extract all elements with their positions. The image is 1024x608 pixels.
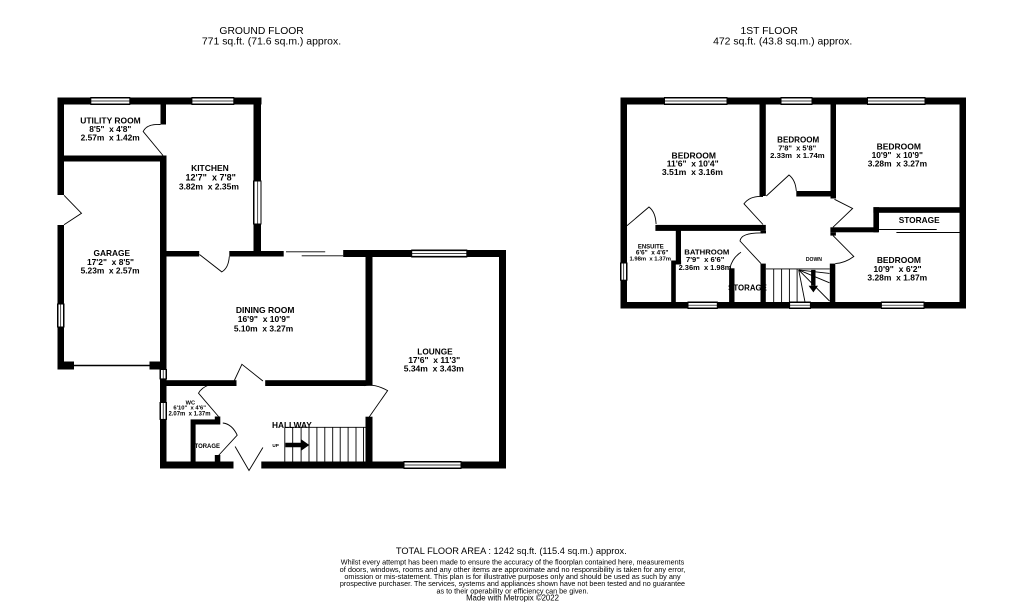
svg-text:2.36m x 1.98m: 2.36m x 1.98m [679, 263, 732, 272]
svg-text:5.23m x 2.57m: 5.23m x 2.57m [81, 266, 140, 276]
svg-text:TOTAL FLOOR AREA : 1242 sq.ft.: TOTAL FLOOR AREA : 1242 sq.ft. (115.4 sq… [396, 546, 627, 556]
svg-text:3.28m x 3.27m: 3.28m x 3.27m [868, 159, 927, 169]
svg-text:5.34m x 3.43m: 5.34m x 3.43m [404, 364, 465, 374]
svg-text:2.07m x 1.37m: 2.07m x 1.37m [168, 412, 210, 418]
svg-text:1ST FLOOR: 1ST FLOOR [740, 26, 798, 37]
svg-text:1.98m x 1.37m: 1.98m x 1.37m [629, 256, 670, 262]
svg-text:STORAGE: STORAGE [191, 444, 220, 450]
svg-text:771 sq.ft. (71.6 sq.m.) approx: 771 sq.ft. (71.6 sq.m.) approx. [202, 37, 341, 48]
svg-text:5.10m x 3.27m: 5.10m x 3.27m [234, 323, 293, 333]
svg-text:2.33m x 1.74m: 2.33m x 1.74m [770, 151, 825, 160]
svg-text:STORAGE: STORAGE [899, 215, 940, 225]
svg-text:GROUND FLOOR: GROUND FLOOR [219, 26, 303, 37]
svg-text:DOWN: DOWN [806, 257, 822, 263]
svg-text:STORAGE: STORAGE [728, 284, 767, 293]
svg-text:3.28m x 1.87m: 3.28m x 1.87m [867, 272, 927, 282]
svg-text:HALLWAY: HALLWAY [272, 420, 312, 430]
svg-text:3.51m x 3.16m: 3.51m x 3.16m [662, 167, 723, 177]
svg-text:472 sq.ft. (43.8 sq.m.) approx: 472 sq.ft. (43.8 sq.m.) approx. [713, 37, 852, 48]
svg-text:3.82m x 2.35m: 3.82m x 2.35m [179, 181, 240, 191]
svg-text:UP: UP [272, 443, 278, 448]
svg-text:Made with Metropix ©2022: Made with Metropix ©2022 [466, 594, 559, 603]
svg-text:2.57m x 1.42m: 2.57m x 1.42m [81, 132, 140, 142]
